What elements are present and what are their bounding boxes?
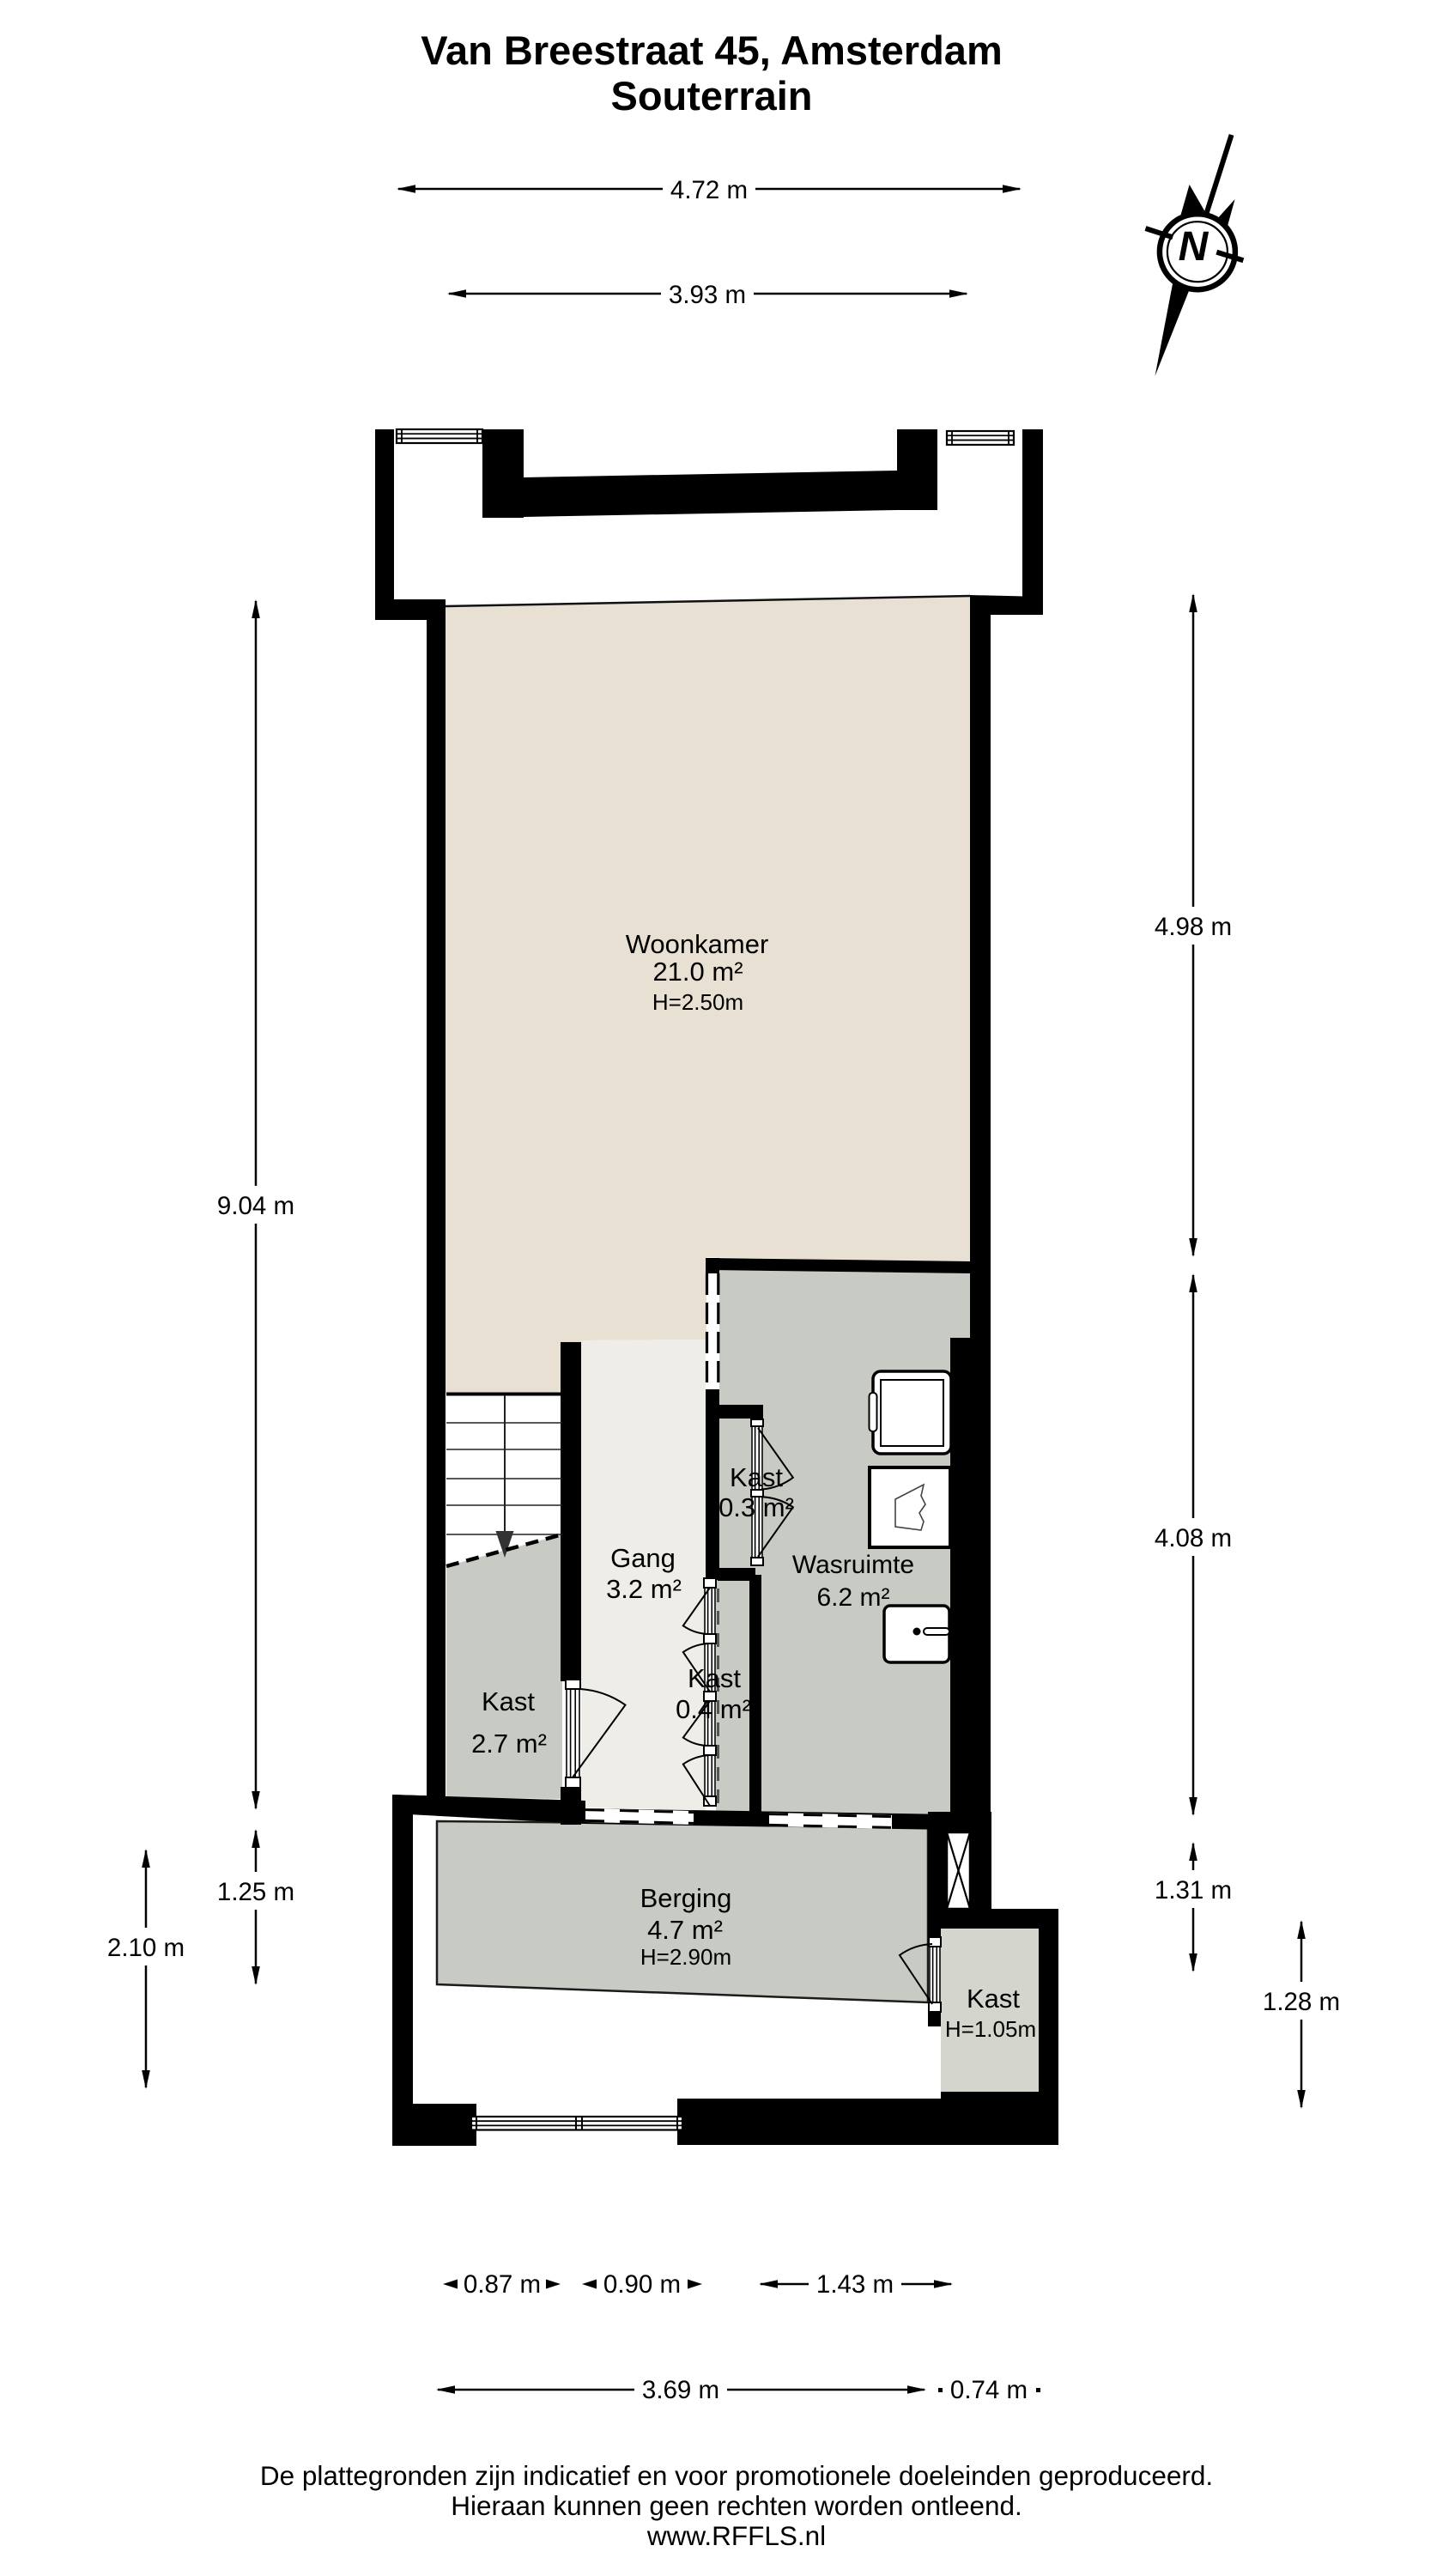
svg-text:4.7 m²: 4.7 m² [647, 1915, 723, 1945]
svg-text:1.31 m: 1.31 m [1155, 1876, 1232, 1905]
svg-text:3.2 m²: 3.2 m² [606, 1574, 682, 1604]
svg-text:Souterrain: Souterrain [610, 73, 812, 118]
svg-text:N: N [1179, 224, 1210, 270]
svg-text:0.4 m²: 0.4 m² [676, 1694, 751, 1724]
svg-text:0.74 m: 0.74 m [950, 2376, 1028, 2404]
svg-text:Kast: Kast [482, 1686, 535, 1716]
svg-text:Kast: Kast [688, 1663, 741, 1693]
svg-text:21.0 m²: 21.0 m² [652, 957, 743, 987]
svg-text:Hieraan kunnen geen rechten wo: Hieraan kunnen geen rechten worden ontle… [451, 2490, 1022, 2521]
svg-text:4.98 m: 4.98 m [1155, 913, 1232, 941]
svg-text:H=2.50m: H=2.50m [652, 989, 743, 1015]
svg-text:Berging: Berging [640, 1883, 732, 1913]
svg-text:Van Breestraat 45, Amsterdam: Van Breestraat 45, Amsterdam [421, 27, 1002, 73]
svg-text:Wasruimte: Wasruimte [792, 1551, 914, 1579]
svg-text:0.90 m: 0.90 m [603, 2270, 681, 2299]
svg-text:De plattegronden zijn indicati: De plattegronden zijn indicatief en voor… [260, 2460, 1213, 2491]
svg-text:H=2.90m: H=2.90m [640, 1944, 731, 1970]
svg-text:1.28 m: 1.28 m [1263, 1988, 1340, 2016]
svg-text:0.3 m²: 0.3 m² [718, 1492, 794, 1522]
svg-text:3.69 m: 3.69 m [642, 2376, 719, 2404]
svg-text:0.87 m: 0.87 m [464, 2270, 541, 2299]
svg-text:4.72 m: 4.72 m [670, 176, 748, 204]
svg-text:6.2 m²: 6.2 m² [816, 1583, 889, 1612]
svg-text:1.43 m: 1.43 m [816, 2270, 894, 2299]
svg-text:2.10 m: 2.10 m [107, 1934, 185, 1962]
svg-text:9.04 m: 9.04 m [217, 1192, 294, 1220]
svg-text:www.RFFLS.nl: www.RFFLS.nl [646, 2520, 826, 2551]
svg-text:1.25 m: 1.25 m [217, 1878, 294, 1906]
svg-text:Kast: Kast [967, 1984, 1020, 2014]
svg-text:Gang: Gang [610, 1543, 676, 1573]
svg-text:3.93 m: 3.93 m [669, 281, 746, 309]
svg-text:Kast: Kast [730, 1462, 783, 1492]
svg-text:4.08 m: 4.08 m [1155, 1524, 1232, 1552]
svg-text:2.7 m²: 2.7 m² [471, 1728, 547, 1759]
svg-text:Woonkamer: Woonkamer [626, 929, 769, 959]
svg-text:H=1.05m: H=1.05m [945, 2016, 1036, 2042]
